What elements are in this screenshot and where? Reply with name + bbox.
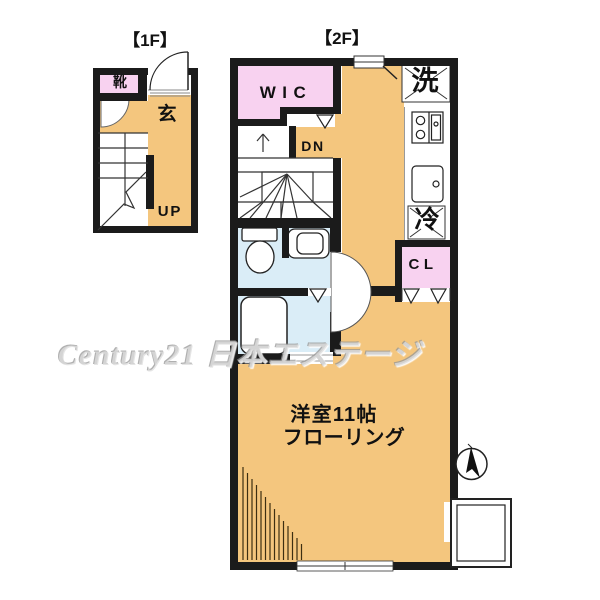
wic-door (296, 114, 335, 128)
stove-icon (412, 112, 443, 143)
shoebox-label: 靴 (102, 75, 138, 90)
washroom-threshold (290, 352, 333, 364)
floor2-title: 【2F】 (303, 30, 381, 48)
entrance-door (148, 52, 188, 90)
compass-north-icon (456, 444, 487, 480)
entrance-label: 玄 (149, 105, 185, 125)
stairs-1f (98, 133, 148, 230)
bathtub-icon (241, 297, 287, 354)
room-name-label: 洋室11帖 (262, 405, 406, 426)
window-top (354, 56, 384, 68)
closet-doors (402, 288, 450, 303)
closet-label: CL (397, 257, 449, 273)
fridge-label: 冷 (406, 207, 448, 233)
entrance-step-line (150, 93, 190, 96)
vanity-icon (288, 229, 329, 258)
balcony (451, 499, 511, 567)
washer-label: 洗 (404, 67, 446, 95)
wic-label: WIC (244, 84, 328, 102)
stairs-down-label: DN (292, 139, 334, 154)
floorplan-page: 【1F】 【2F】 靴 玄 UP WIC 洗 DN 冷 CL 洋室11帖 フロー… (0, 0, 600, 600)
stairs-up-label: UP (149, 204, 191, 220)
flooring-label: フローリング (262, 428, 426, 449)
sink-icon (412, 166, 443, 202)
window-bottom (297, 561, 393, 571)
floor1-title: 【1F】 (112, 32, 188, 50)
